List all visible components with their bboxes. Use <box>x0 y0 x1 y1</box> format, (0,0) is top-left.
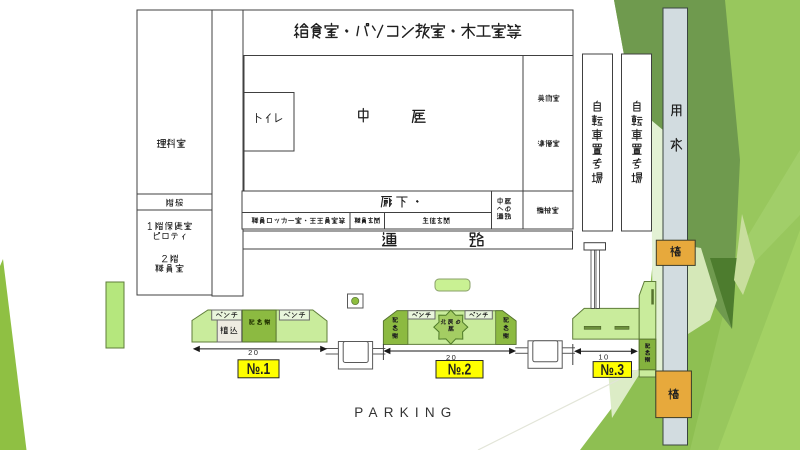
svg-text:№.3: №.3 <box>601 362 625 379</box>
svg-text:10: 10 <box>598 352 609 361</box>
svg-text:№.1: №.1 <box>247 361 271 378</box>
svg-text:20: 20 <box>248 348 259 357</box>
svg-text:№.2: №.2 <box>448 362 472 379</box>
